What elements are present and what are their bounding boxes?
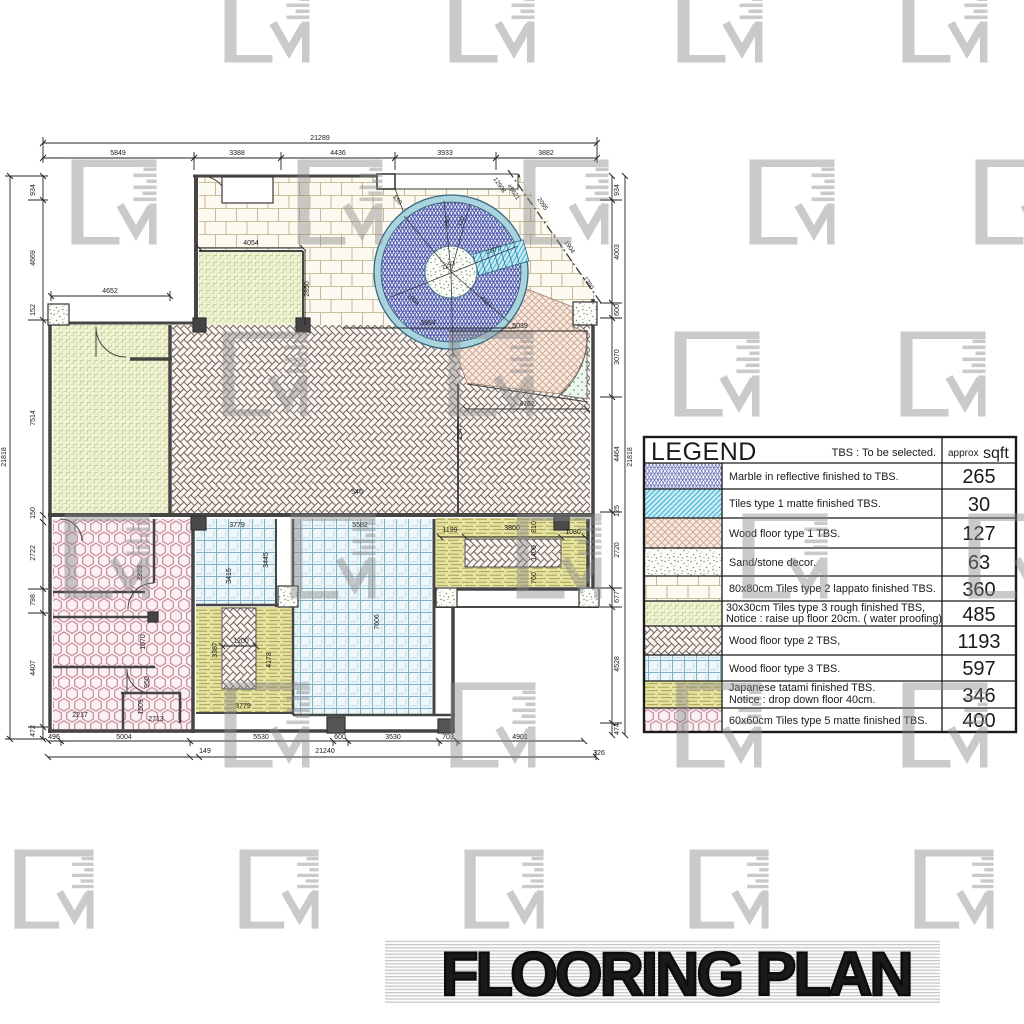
- svg-text:21818: 21818: [627, 447, 634, 467]
- svg-text:810: 810: [531, 521, 538, 533]
- svg-text:3954: 3954: [420, 320, 436, 327]
- svg-text:30: 30: [968, 494, 990, 516]
- svg-text:4528: 4528: [614, 656, 621, 672]
- svg-text:3530: 3530: [385, 734, 401, 741]
- svg-text:3779: 3779: [235, 703, 251, 710]
- svg-text:FLOORING PLAN: FLOORING PLAN: [441, 940, 911, 1008]
- svg-text:4652: 4652: [102, 288, 118, 295]
- svg-text:4464: 4464: [614, 446, 621, 462]
- svg-text:3070: 3070: [614, 349, 621, 365]
- svg-text:1199: 1199: [442, 527, 457, 534]
- svg-text:950: 950: [144, 676, 151, 688]
- svg-text:798: 798: [30, 594, 37, 606]
- svg-text:Wood floor type 3 TBS.: Wood floor type 3 TBS.: [729, 663, 840, 675]
- svg-text:4436: 4436: [330, 150, 346, 157]
- svg-text:21289: 21289: [310, 135, 330, 142]
- svg-text:149: 149: [199, 748, 211, 755]
- svg-text:5530: 5530: [253, 734, 269, 741]
- svg-text:21240: 21240: [315, 748, 335, 755]
- svg-text:Sand/stone decor.: Sand/stone decor.: [729, 557, 816, 569]
- svg-text:4669: 4669: [30, 250, 37, 266]
- svg-text:1400: 1400: [531, 545, 538, 561]
- svg-text:600: 600: [334, 734, 346, 741]
- svg-text:3387: 3387: [212, 642, 219, 658]
- svg-text:4054: 4054: [243, 240, 259, 247]
- svg-text:677: 677: [614, 591, 621, 603]
- svg-text:485: 485: [962, 604, 995, 626]
- svg-text:472: 472: [30, 725, 37, 737]
- svg-text:546: 546: [351, 489, 363, 496]
- svg-text:3779: 3779: [229, 522, 245, 529]
- svg-text:1200: 1200: [233, 638, 249, 645]
- svg-text:Tiles type 1 matte finished TB: Tiles type 1 matte finished TBS.: [729, 498, 881, 510]
- svg-text:1670: 1670: [140, 634, 147, 650]
- svg-text:152: 152: [30, 304, 37, 316]
- svg-text:326: 326: [593, 750, 605, 757]
- svg-text:Wood floor type 2 TBS,: Wood floor type 2 TBS,: [729, 635, 840, 647]
- svg-text:4003: 4003: [614, 244, 621, 260]
- svg-text:2720: 2720: [614, 542, 621, 558]
- svg-text:474: 474: [614, 723, 621, 735]
- svg-text:4178: 4178: [266, 652, 273, 668]
- svg-text:3415: 3415: [226, 568, 233, 584]
- svg-text:7514: 7514: [30, 410, 37, 426]
- svg-text:2722: 2722: [30, 545, 37, 561]
- svg-text:LEGEND: LEGEND: [651, 438, 757, 466]
- svg-text:597: 597: [962, 658, 995, 680]
- svg-text:7606: 7606: [374, 614, 381, 630]
- svg-text:2217: 2217: [72, 712, 88, 719]
- svg-text:TBS : To be selected.: TBS : To be selected.: [832, 447, 936, 459]
- svg-text:5004: 5004: [116, 734, 132, 741]
- svg-text:1193: 1193: [957, 631, 1000, 653]
- svg-text:125: 125: [614, 505, 621, 517]
- svg-text:3445: 3445: [263, 552, 270, 568]
- svg-text:2850: 2850: [304, 281, 311, 297]
- svg-text:934: 934: [30, 184, 37, 196]
- svg-text:3388: 3388: [229, 150, 245, 157]
- svg-text:496: 496: [48, 734, 60, 741]
- svg-text:600: 600: [614, 304, 621, 316]
- svg-text:2347: 2347: [457, 424, 464, 440]
- svg-text:1509: 1509: [138, 699, 145, 715]
- svg-text:265: 265: [962, 466, 995, 488]
- svg-text:934: 934: [614, 184, 621, 196]
- svg-text:5039: 5039: [512, 323, 528, 330]
- svg-text:Notice : raise up floor 20cm.: Notice : raise up floor 20cm. ( water pr…: [726, 613, 942, 625]
- svg-text:3882: 3882: [538, 150, 554, 157]
- svg-text:760: 760: [531, 572, 538, 584]
- svg-text:150: 150: [30, 507, 37, 519]
- svg-text:3933: 3933: [437, 150, 453, 157]
- svg-text:5849: 5849: [110, 150, 126, 157]
- svg-text:21818: 21818: [1, 447, 8, 467]
- svg-text:4407: 4407: [30, 660, 37, 676]
- svg-text:2713: 2713: [148, 716, 164, 723]
- svg-text:approx: approx: [948, 448, 979, 459]
- svg-text:sqft: sqft: [983, 445, 1009, 462]
- svg-text:Marble in reflective finished: Marble in reflective finished to TBS.: [729, 471, 899, 483]
